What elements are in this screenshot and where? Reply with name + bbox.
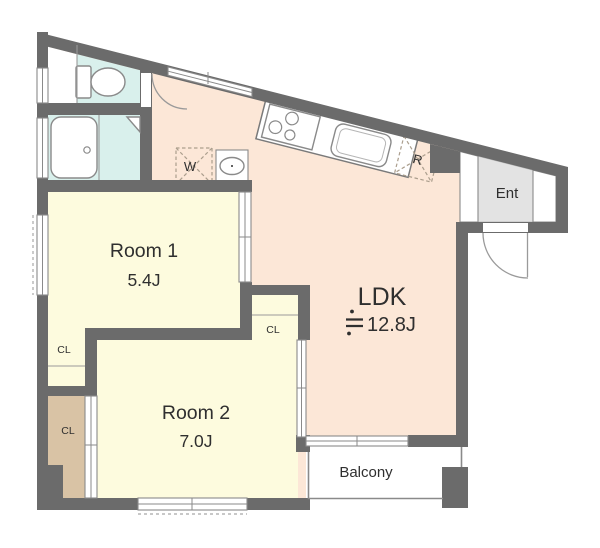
- ldk-name: LDK: [358, 283, 407, 311]
- floor-plan-svg: R: [0, 0, 600, 548]
- entrance-label: Ent: [496, 185, 519, 202]
- wall-toilet-bath-divider: [37, 103, 152, 115]
- entrance-storage-left: [460, 152, 478, 223]
- closet-nook-label: CL: [266, 324, 280, 336]
- closet-sliding-door: [85, 396, 97, 498]
- room1-name: Room 1: [110, 240, 178, 262]
- wall-balcony-block: [442, 467, 468, 508]
- toilet-vestibule-floor: [48, 47, 77, 103]
- toilet-icon: [76, 66, 125, 98]
- room2-size: 7.0J: [179, 431, 212, 451]
- balcony-window: [306, 436, 408, 446]
- bathtub-icon: [51, 117, 97, 178]
- floor-plan: R: [0, 0, 600, 548]
- closet-room1-label: CL: [57, 344, 71, 356]
- washbasin-icon: [216, 150, 248, 182]
- closet-room2-label: CL: [61, 425, 75, 437]
- wall-nook-top: [252, 285, 310, 295]
- room2-name: Room 2: [162, 402, 230, 424]
- wall-nook-right: [298, 295, 310, 340]
- balcony-floor-notch: [445, 447, 462, 467]
- ldk-size: 12.8J: [367, 314, 416, 336]
- wall-rooms-mid: [85, 328, 252, 340]
- bathroom-window: [37, 118, 48, 178]
- wall-room1-top: [37, 180, 252, 192]
- wall-ext-bottom: [37, 386, 97, 396]
- toilet-window: [37, 68, 48, 103]
- room1-size: 5.4J: [127, 270, 160, 290]
- balcony-label: Balcony: [339, 464, 393, 481]
- room1-sliding-door: [239, 192, 251, 282]
- wall-closet-notch: [37, 465, 63, 510]
- wall-ldk-bottom-right: [408, 435, 468, 447]
- washer-label: W: [184, 159, 197, 174]
- entrance-storage-right: [533, 170, 556, 222]
- wall-ldk-right: [456, 222, 468, 447]
- room2-sliding-door: [297, 340, 306, 437]
